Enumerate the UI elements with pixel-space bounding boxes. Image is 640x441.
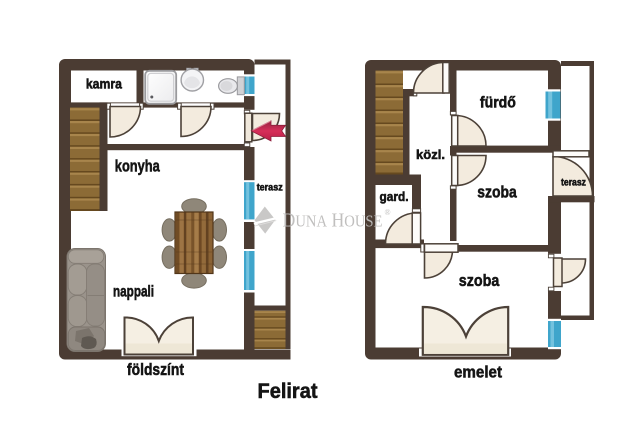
svg-text:földszínt: földszínt <box>127 360 184 379</box>
svg-text:terasz: terasz <box>257 183 283 194</box>
svg-text:terasz: terasz <box>561 177 586 188</box>
svg-text:kamra: kamra <box>86 75 122 91</box>
svg-text:szoba: szoba <box>477 183 517 201</box>
svg-text:Felirat: Felirat <box>258 380 318 403</box>
svg-text:DUNA HOUSE: DUNA HOUSE <box>283 210 383 232</box>
svg-text:nappali: nappali <box>113 283 154 300</box>
svg-text:emelet: emelet <box>454 364 502 382</box>
svg-text:®: ® <box>385 208 391 217</box>
svg-text:fürdő: fürdő <box>480 94 516 111</box>
svg-text:szoba: szoba <box>459 271 500 290</box>
svg-text:közl.: közl. <box>416 147 445 162</box>
svg-text:gard.: gard. <box>380 189 409 204</box>
svg-text:konyha: konyha <box>115 157 161 175</box>
